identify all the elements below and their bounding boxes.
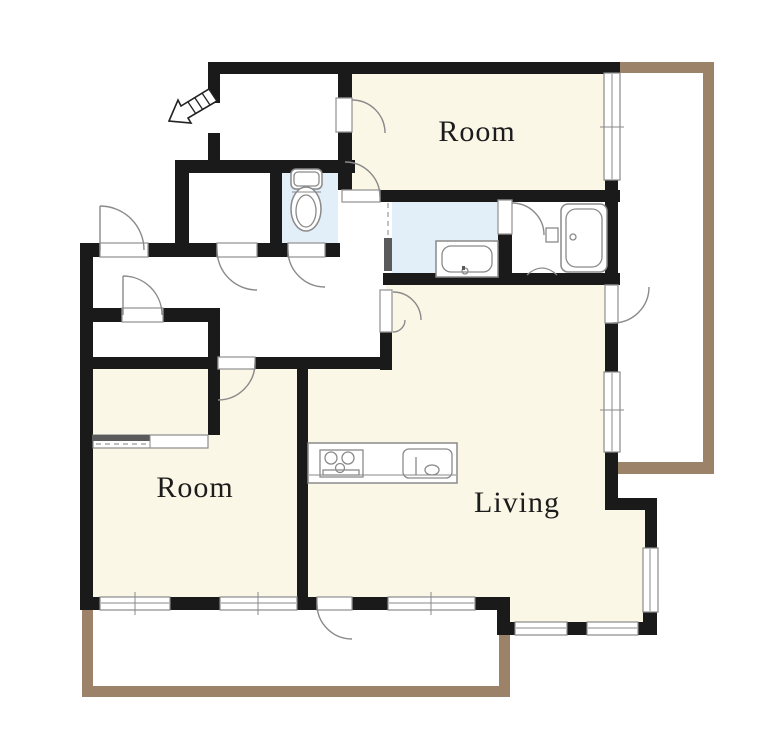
balcony-south-rail [82,686,510,697]
toilet-icon [291,169,322,231]
window [643,548,658,612]
kitchen-counter [308,443,457,483]
balcony-east-rail [618,62,714,73]
balcony-east-rail [617,462,714,474]
window [587,622,638,635]
door-swing-icon [317,597,352,639]
floor-plan: Room Room Living [0,0,774,748]
entrance-arrow-icon [169,89,217,123]
door-swing-icon [498,200,544,235]
living-label: Living [474,486,560,519]
room-bottom-label: Room [156,471,233,504]
room-top-label: Room [438,115,515,148]
door-swing-icon [217,243,257,290]
door-swing-icon [605,285,649,323]
window [515,622,567,635]
door-swing-icon [100,206,148,257]
folding-door-icon [384,203,392,271]
washbasin-icon [436,241,498,277]
door-swing-icon [122,276,163,322]
bathtub-icon [527,204,607,275]
balcony-south-rail [82,607,93,697]
window [600,73,624,180]
room-floors [93,74,652,632]
door-swing-icon [288,243,325,287]
balcony-east-rail [703,62,714,474]
sliding-door-icon [93,435,208,448]
window [600,372,624,452]
balcony-south-rail [499,635,510,697]
